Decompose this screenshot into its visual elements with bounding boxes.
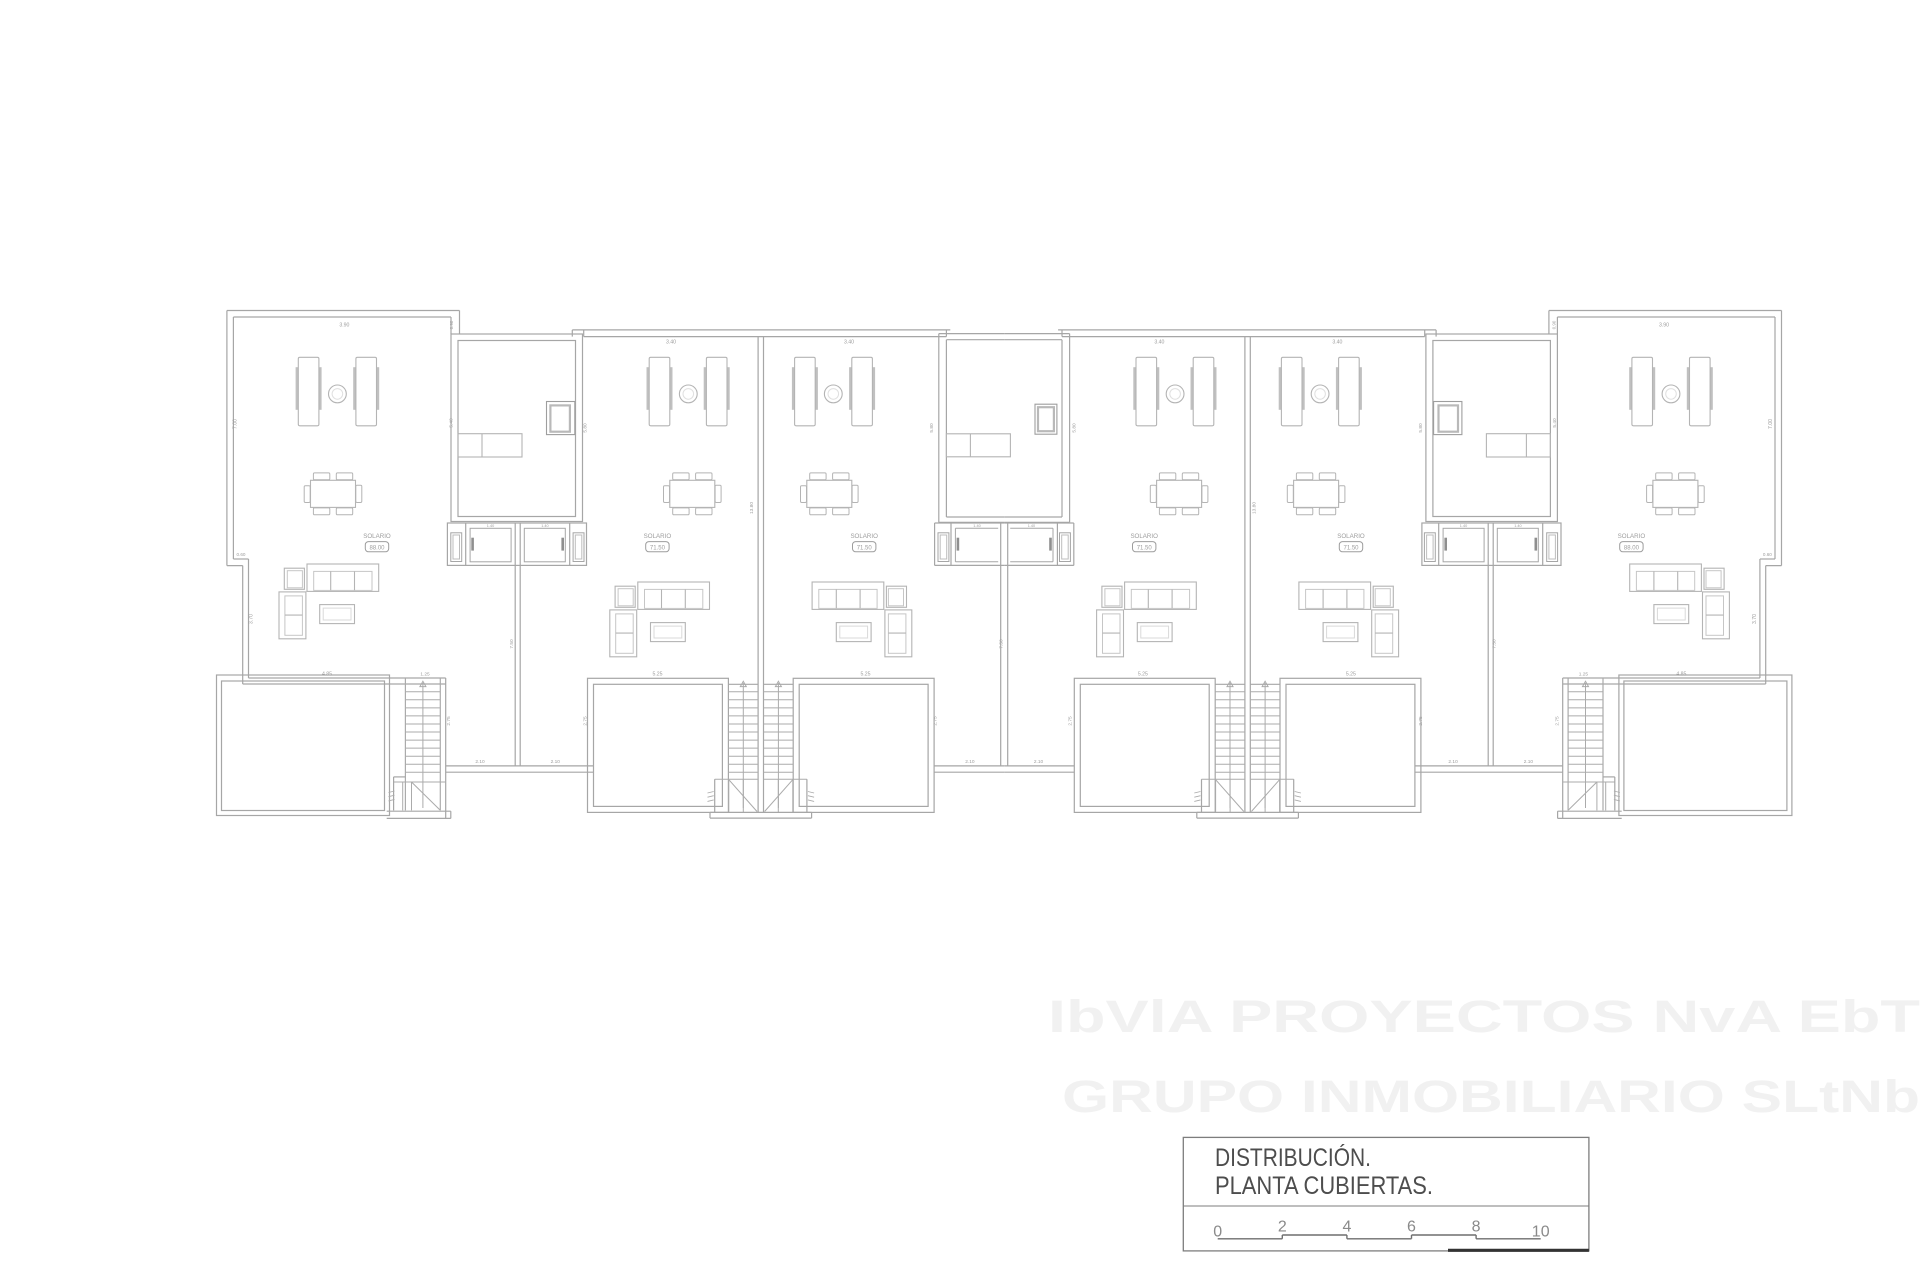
svg-text:1.40: 1.40 xyxy=(541,524,548,528)
svg-text:1.40: 1.40 xyxy=(1514,524,1521,528)
svg-text:0: 0 xyxy=(1213,1224,1222,1241)
svg-text:7.50: 7.50 xyxy=(999,639,1005,649)
svg-text:3.70: 3.70 xyxy=(1752,614,1758,624)
svg-text:7.50: 7.50 xyxy=(1491,639,1497,649)
svg-text:5.40: 5.40 xyxy=(1552,418,1558,428)
svg-text:IbVlA PROYECTOS NvA EbT: IbVlA PROYECTOS NvA EbT xyxy=(1048,991,1920,1042)
svg-text:7.00: 7.00 xyxy=(1768,419,1774,429)
svg-text:GRUPO INMOBILIARIO SLtNb: GRUPO INMOBILIARIO SLtNb xyxy=(1062,1071,1920,1122)
svg-text:71.50: 71.50 xyxy=(1137,546,1153,552)
svg-text:88.00: 88.00 xyxy=(1624,546,1640,552)
svg-text:2.10: 2.10 xyxy=(551,759,561,765)
svg-text:DISTRIBUCIÓN.: DISTRIBUCIÓN. xyxy=(1215,1143,1371,1172)
svg-text:13.80: 13.80 xyxy=(1251,502,1257,514)
svg-text:0.60: 0.60 xyxy=(237,552,246,557)
svg-text:1.25: 1.25 xyxy=(420,672,430,678)
svg-text:2.75: 2.75 xyxy=(1554,716,1560,726)
svg-text:88.00: 88.00 xyxy=(369,546,385,552)
svg-text:5.25: 5.25 xyxy=(860,672,870,678)
svg-text:2.10: 2.10 xyxy=(1034,759,1044,765)
svg-text:6: 6 xyxy=(1407,1219,1416,1236)
svg-text:5.25: 5.25 xyxy=(1346,672,1356,678)
svg-text:2.75: 2.75 xyxy=(933,716,939,726)
svg-text:0.90: 0.90 xyxy=(1551,320,1556,329)
svg-text:7.00: 7.00 xyxy=(233,419,239,429)
svg-text:1.40: 1.40 xyxy=(973,524,980,528)
svg-text:3.90: 3.90 xyxy=(339,323,349,329)
svg-text:5.80: 5.80 xyxy=(1418,423,1424,433)
svg-text:71.50: 71.50 xyxy=(857,546,873,552)
svg-text:SOLARIO: SOLARIO xyxy=(850,533,878,540)
svg-text:2.10: 2.10 xyxy=(475,759,485,765)
svg-text:71.50: 71.50 xyxy=(650,546,666,552)
svg-text:2.10: 2.10 xyxy=(1448,759,1458,765)
svg-text:1.40: 1.40 xyxy=(1460,524,1467,528)
svg-text:3.70: 3.70 xyxy=(249,614,255,624)
svg-text:0.60: 0.60 xyxy=(1763,552,1772,557)
svg-text:2.75: 2.75 xyxy=(446,716,452,726)
svg-text:2.75: 2.75 xyxy=(1418,716,1424,726)
svg-text:7.50: 7.50 xyxy=(509,639,515,649)
svg-text:5.80: 5.80 xyxy=(929,423,935,433)
svg-text:SOLARIO: SOLARIO xyxy=(1618,533,1646,540)
svg-text:8: 8 xyxy=(1472,1219,1481,1236)
svg-text:5.25: 5.25 xyxy=(652,672,662,678)
svg-text:2.10: 2.10 xyxy=(1524,759,1534,765)
svg-text:PLANTA CUBIERTAS.: PLANTA CUBIERTAS. xyxy=(1215,1172,1433,1200)
svg-text:0.90: 0.90 xyxy=(449,320,454,329)
svg-text:3.40: 3.40 xyxy=(844,340,854,346)
svg-text:5.80: 5.80 xyxy=(582,423,588,433)
svg-text:71.50: 71.50 xyxy=(1343,546,1359,552)
svg-text:2.75: 2.75 xyxy=(582,716,588,726)
svg-text:4: 4 xyxy=(1342,1219,1351,1236)
svg-text:5.80: 5.80 xyxy=(1071,423,1077,433)
svg-text:1.40: 1.40 xyxy=(487,524,494,528)
svg-text:SOLARIO: SOLARIO xyxy=(1337,533,1365,540)
svg-text:4.85: 4.85 xyxy=(322,672,332,678)
svg-text:4.85: 4.85 xyxy=(1676,672,1686,678)
svg-text:13.80: 13.80 xyxy=(749,502,755,514)
svg-text:SOLARIO: SOLARIO xyxy=(644,533,672,540)
svg-text:SOLARIO: SOLARIO xyxy=(1130,533,1158,540)
svg-text:3.40: 3.40 xyxy=(1154,340,1164,346)
svg-text:10: 10 xyxy=(1532,1224,1550,1241)
svg-text:SOLARIO: SOLARIO xyxy=(363,533,391,540)
svg-text:3.40: 3.40 xyxy=(666,340,676,346)
svg-text:3.90: 3.90 xyxy=(1659,323,1669,329)
svg-text:2.10: 2.10 xyxy=(965,759,975,765)
svg-text:5.40: 5.40 xyxy=(449,418,455,428)
svg-text:2: 2 xyxy=(1278,1219,1287,1236)
svg-text:5.25: 5.25 xyxy=(1138,672,1148,678)
svg-text:3.40: 3.40 xyxy=(1332,340,1342,346)
svg-text:1.25: 1.25 xyxy=(1579,672,1589,678)
svg-text:1.40: 1.40 xyxy=(1028,524,1035,528)
svg-text:2.75: 2.75 xyxy=(1068,716,1074,726)
